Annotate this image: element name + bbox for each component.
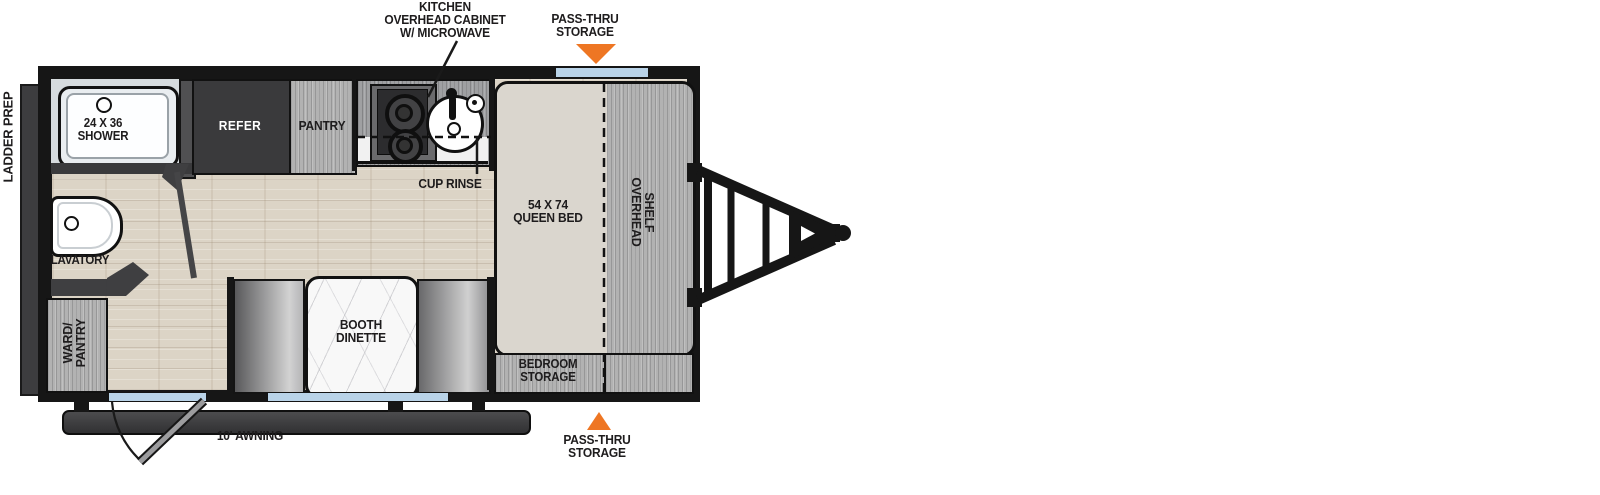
hitch-ball-icon xyxy=(835,225,851,241)
pass-thru-top-label: PASS-THRU STORAGE xyxy=(551,12,618,38)
trailer-tongue xyxy=(687,163,851,307)
pass-thru-marker-top-icon xyxy=(576,44,616,64)
shower-label: 24 X 36 SHOWER xyxy=(78,117,129,143)
pass-thru-marker-bottom-icon xyxy=(587,412,611,430)
booth-dinette-label: BOOTH DINETTE xyxy=(336,318,386,344)
ladder-prep-label: LADDER PREP xyxy=(2,92,15,183)
bathroom-lower-wall xyxy=(51,163,192,174)
cup-rinse-label: CUP RINSE xyxy=(418,177,481,190)
sink-drain-icon xyxy=(447,122,461,136)
queen-bed-label: 54 X 74 QUEEN BED xyxy=(513,198,582,224)
faucet-icon xyxy=(449,96,456,120)
burner-center-icon xyxy=(395,104,413,122)
ward-pantry-label: WARD/ PANTRY xyxy=(62,319,88,368)
pass-thru-bottom-label: PASS-THRU STORAGE xyxy=(563,433,630,459)
window-entry-door xyxy=(108,392,207,402)
overhead-shelf-label: OVERHEAD SHELF xyxy=(629,177,655,246)
awning-label: 10' AWNING xyxy=(217,429,283,442)
coupler-neck xyxy=(828,224,840,242)
window-pass-thru-top xyxy=(555,67,649,78)
bedroom-storage-label: BEDROOM STORAGE xyxy=(519,358,578,384)
window-dinette xyxy=(267,392,449,402)
lavatory-label: LAVATORY xyxy=(51,254,110,267)
awning-bar xyxy=(62,410,531,435)
pantry-label: PANTRY xyxy=(299,119,346,132)
awning-bracket xyxy=(472,400,485,411)
rv-floorplan: KITCHEN OVERHEAD CABINET W/ MICROWAVE PA… xyxy=(0,0,1600,495)
toilet-flush-icon xyxy=(64,216,79,231)
kitchen-callout-label: KITCHEN OVERHEAD CABINET W/ MICROWAVE xyxy=(384,0,505,39)
refer-label: REFER xyxy=(219,119,261,132)
dinette-bench-left xyxy=(233,279,305,394)
cup-rinse-dot-icon xyxy=(472,100,477,105)
burner-center-icon xyxy=(396,137,413,154)
dinette-bench-right xyxy=(417,279,491,394)
dinette-wall-right xyxy=(487,277,495,390)
shower-drain-icon xyxy=(96,97,112,113)
bedroom-storage-right xyxy=(604,353,694,394)
lavatory-wall xyxy=(51,279,112,296)
faucet-head-icon xyxy=(446,88,457,99)
awning-bracket xyxy=(74,400,89,412)
